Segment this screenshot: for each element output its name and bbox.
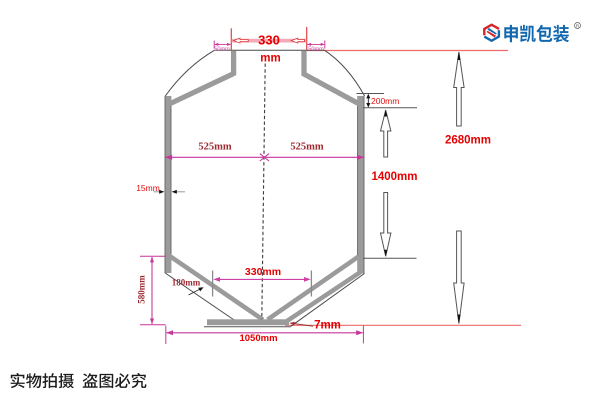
svg-text:200mm: 200mm — [371, 96, 399, 106]
svg-text:1050mm: 1050mm — [239, 333, 277, 344]
svg-text:1400mm: 1400mm — [371, 171, 417, 183]
svg-text:180mm: 180mm — [172, 278, 201, 288]
svg-text:525mm: 525mm — [198, 142, 231, 153]
svg-text:580mm: 580mm — [137, 275, 147, 304]
svg-text:330mm: 330mm — [245, 266, 281, 278]
svg-text:mm: mm — [260, 53, 280, 65]
svg-text:525mm: 525mm — [290, 142, 323, 153]
svg-text:50mm: 50mm — [214, 47, 230, 53]
svg-text:7mm: 7mm — [314, 320, 341, 332]
svg-text:330: 330 — [258, 32, 280, 47]
svg-text:2680mm: 2680mm — [445, 135, 491, 147]
svg-text:50mm: 50mm — [308, 47, 324, 53]
